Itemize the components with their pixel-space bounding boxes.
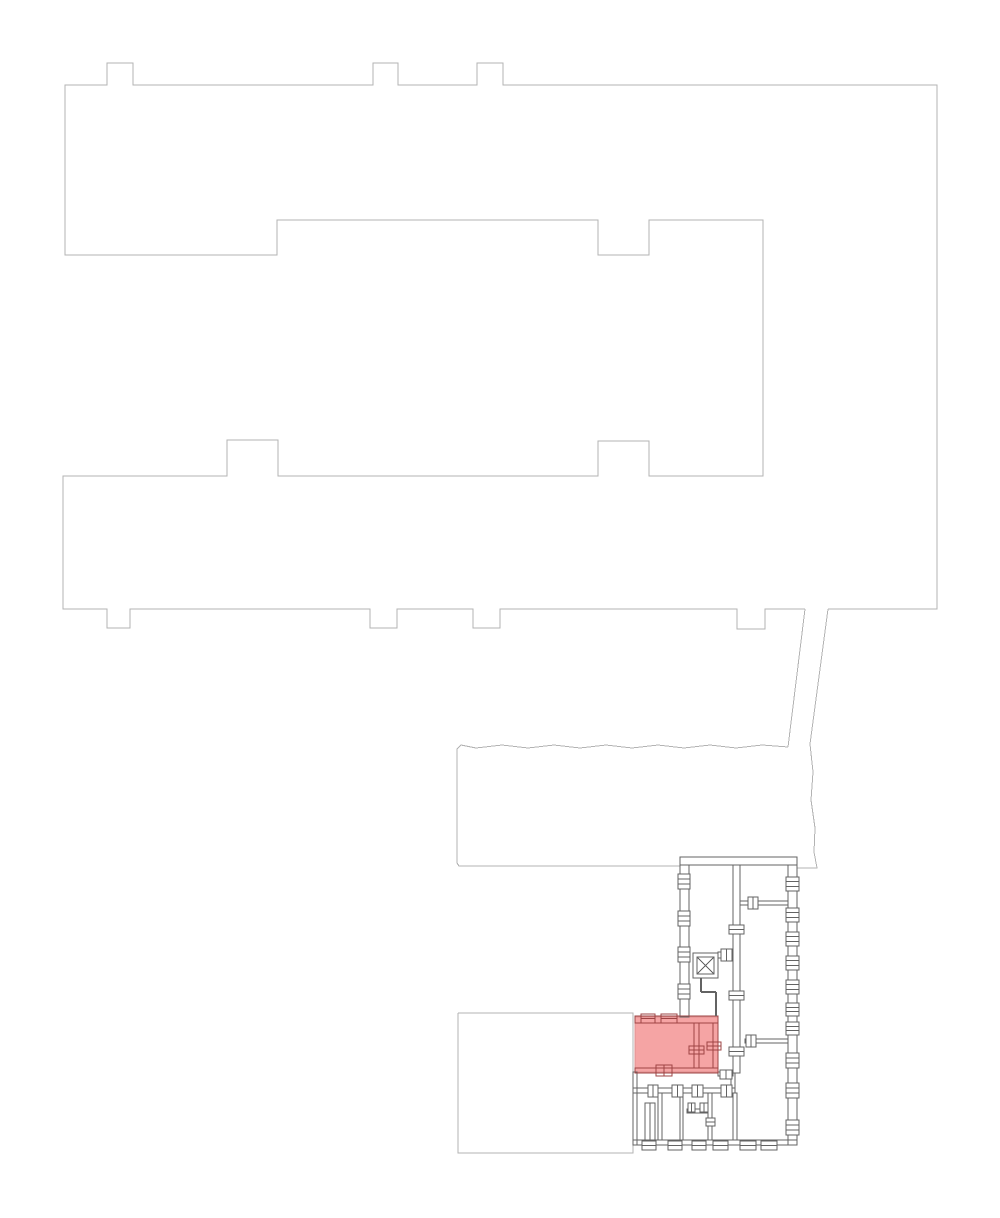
window-hatch: [678, 911, 690, 926]
window-hatch: [786, 908, 799, 922]
connector-left-line: [788, 609, 805, 747]
floor-plan-canvas: [0, 0, 1000, 1218]
room-divider-wall: [658, 1093, 662, 1140]
plan-top-wall: [680, 857, 797, 865]
window-hatch: [786, 1003, 799, 1016]
lower-left-wall: [633, 1072, 637, 1145]
plan-interior-wall: [733, 865, 740, 1073]
window-hatch: [786, 877, 799, 891]
hall-outline: [457, 745, 788, 866]
floor-plan-page: [0, 0, 1000, 1218]
annex-outline: [458, 1013, 633, 1153]
window-hatch: [678, 984, 690, 999]
window-hatch: [786, 932, 799, 946]
hall-right-edge: [797, 744, 817, 868]
highlighted-room[interactable]: [635, 1017, 718, 1072]
window-hatch: [678, 947, 690, 962]
window-hatch: [786, 1083, 799, 1098]
room-divider-wall: [733, 1093, 737, 1140]
window-hatch: [786, 1120, 799, 1135]
window-hatch: [786, 956, 799, 970]
main-building-outline: [63, 63, 937, 629]
room-divider-wall: [708, 1093, 712, 1140]
window-hatch: [786, 980, 799, 994]
room-divider-wall: [680, 1093, 683, 1140]
connector-right-line: [810, 609, 828, 744]
room-divider-wall: [740, 901, 788, 905]
window-hatch: [678, 874, 690, 889]
window-hatch: [786, 1022, 799, 1035]
window-hatch: [786, 1053, 799, 1068]
